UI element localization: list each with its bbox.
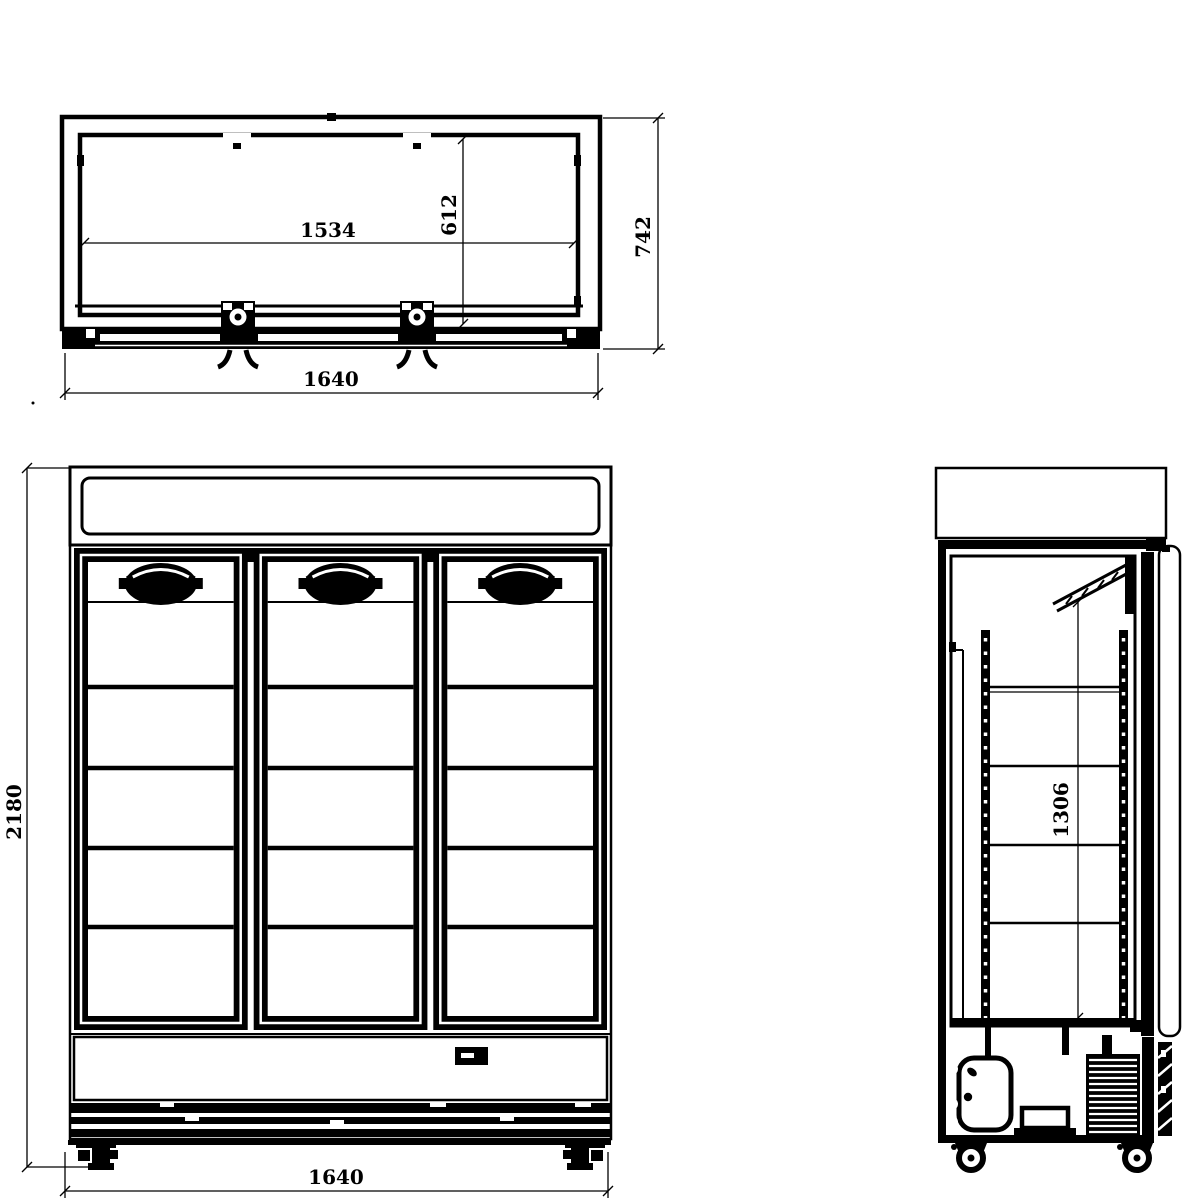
header-panel-side <box>936 468 1166 538</box>
caster-tab <box>591 1150 603 1161</box>
evaporator-tray <box>973 592 1059 600</box>
wall-stud-left <box>77 155 84 166</box>
evaporator-coil-edge <box>1053 565 1126 604</box>
compressor <box>946 1045 1011 1130</box>
caster-leg <box>571 1148 589 1164</box>
compressor-port <box>966 1066 979 1078</box>
refrigerator-technical-drawing: 1534 612 <box>0 0 1200 1200</box>
dim-overall-width-top: 1640 <box>60 353 603 400</box>
louver-notch <box>160 1103 174 1107</box>
hinge-notch <box>423 303 432 310</box>
caster-foot <box>88 1163 114 1170</box>
caster-bolt <box>1117 1144 1123 1150</box>
evaporator <box>973 565 1130 611</box>
hinge-pin <box>235 314 242 321</box>
top-view-door-front <box>62 327 600 349</box>
caster-tab <box>78 1150 90 1161</box>
caster-bolt <box>951 1144 957 1150</box>
wheel-hub <box>968 1155 975 1162</box>
door-bottom-section <box>1158 1042 1172 1136</box>
louver-notch <box>330 1120 344 1124</box>
mounting-bracket <box>1014 1108 1076 1136</box>
clip-notch <box>233 143 241 149</box>
compressor-pipe <box>985 1027 991 1060</box>
mount-bolt <box>946 1045 958 1057</box>
door-end-cap-right <box>567 329 576 338</box>
louver-notch <box>185 1117 199 1121</box>
wall-stud-right-top <box>574 155 581 166</box>
louver-notch <box>430 1103 446 1107</box>
caster-front-right <box>563 1141 605 1170</box>
dim-text-overall-depth: 742 <box>631 216 655 258</box>
door-section-bar <box>1141 552 1154 1036</box>
stray-mark <box>32 402 35 405</box>
front-bar-slot <box>436 334 562 341</box>
condenser-coil <box>1086 1054 1140 1138</box>
dim-overall-depth: 742 <box>603 113 665 354</box>
brand-badge <box>455 1047 488 1065</box>
kick-panel <box>74 1037 607 1100</box>
door-2 <box>254 548 428 1030</box>
wheel-hub <box>1134 1155 1141 1162</box>
dim-interior-height: 1306 <box>1049 597 1083 1023</box>
caster-mount <box>565 1141 605 1148</box>
front-bar-slot <box>258 334 398 341</box>
caster-foot <box>567 1163 593 1170</box>
mount-bolt <box>946 1098 958 1110</box>
caster-tab <box>110 1150 118 1159</box>
door-3 <box>433 548 607 1030</box>
side-view: 1306 <box>936 468 1180 1170</box>
dim-inner-width: 1534 <box>79 218 579 248</box>
front-view: 2180 <box>2 463 613 1198</box>
door-handle-hook <box>218 350 230 367</box>
foam-hole <box>1161 1050 1166 1057</box>
hinge-notch <box>402 303 411 310</box>
dim-text-interior-height: 1306 <box>1049 782 1073 838</box>
dim-text-inner-width: 1534 <box>300 218 356 242</box>
mount-bolt <box>946 1116 958 1128</box>
top-view-center-mark <box>327 113 336 121</box>
machine-compartment <box>938 1027 1172 1170</box>
floor-step <box>1130 1020 1154 1032</box>
door-outer-profile <box>1159 546 1180 1036</box>
door-1 <box>74 548 248 1030</box>
dim-text-overall-height: 2180 <box>2 784 26 840</box>
hinge-notch <box>223 303 232 310</box>
compartment-right-wall <box>1142 1037 1154 1143</box>
dim-text-overall-width-front: 1640 <box>308 1165 364 1189</box>
door-handle-hook <box>246 350 258 367</box>
compressor-port <box>964 1093 972 1101</box>
header-panel <box>70 467 611 545</box>
liner-notch <box>949 642 956 652</box>
bracket-base <box>1014 1128 1076 1136</box>
hinge-pin <box>414 314 421 321</box>
dim-overall-width-front: 1640 <box>60 1152 613 1198</box>
frame-stub <box>1062 1027 1069 1055</box>
caster-leg <box>92 1148 110 1164</box>
mount-bolt <box>946 1063 958 1075</box>
caster-tab <box>563 1150 571 1159</box>
dim-text-overall-width: 1640 <box>303 367 359 391</box>
badge-mark <box>461 1053 474 1058</box>
caster-side-right <box>1117 1143 1153 1170</box>
foam-hole <box>1161 1086 1166 1093</box>
mounting-clip-right <box>403 133 431 149</box>
compartment-left-wall <box>938 1037 946 1142</box>
caster-mount <box>76 1141 116 1148</box>
louver-bar <box>70 1129 611 1137</box>
bracket-body <box>1022 1108 1068 1128</box>
drawing-canvas: 1534 612 <box>0 0 1200 1200</box>
louver-notch <box>575 1103 591 1107</box>
cabinet-top-bar <box>938 540 1152 549</box>
hinge-notch <box>244 303 253 310</box>
header-sign-panel <box>82 478 599 534</box>
louver-bar <box>70 1103 611 1113</box>
mounting-clip-left <box>223 133 251 149</box>
condenser-stub <box>1102 1035 1112 1057</box>
base-rail <box>68 1140 611 1145</box>
shelf-rail-right <box>1119 630 1128 1026</box>
door-glass <box>447 562 593 1016</box>
door-glass <box>88 562 234 1016</box>
liner-outline-side <box>951 556 1135 1026</box>
cabinet-back-wall <box>938 540 946 1037</box>
louver-notch <box>500 1117 514 1121</box>
front-bar-slot <box>100 334 220 341</box>
caster-side-left <box>951 1143 987 1170</box>
evaporator-coil-edge <box>1057 572 1130 611</box>
door-handle-hook <box>425 350 437 367</box>
door-glass <box>268 562 414 1016</box>
liner-corner-bar <box>1125 556 1135 614</box>
dim-text-inner-depth: 612 <box>437 194 461 236</box>
dim-inner-depth: 612 <box>437 134 468 329</box>
shelf-rail-left <box>981 630 990 1026</box>
clip-notch <box>413 143 421 149</box>
top-view: 1534 612 <box>32 113 666 405</box>
interior-floor <box>951 1018 1135 1027</box>
caster-front-left <box>76 1141 118 1170</box>
door-handle-hook <box>397 350 409 367</box>
door-end-cap-left <box>86 329 95 338</box>
